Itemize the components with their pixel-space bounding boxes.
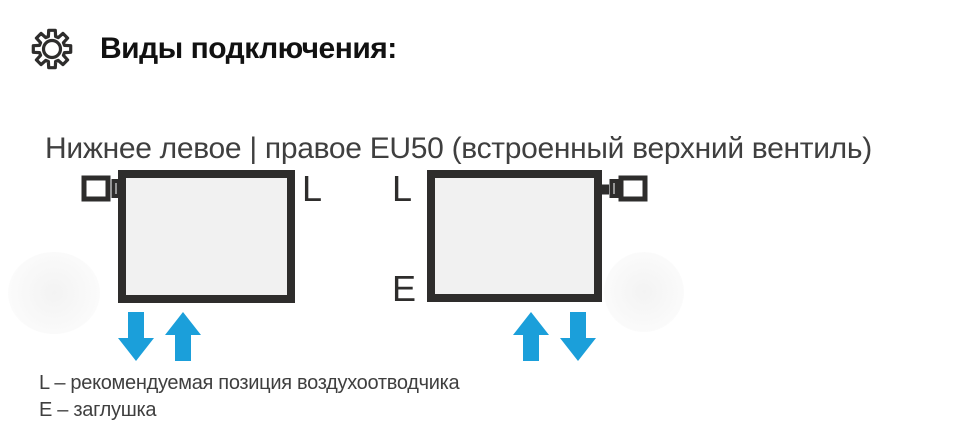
- connection-types-panel: Виды подключения: Нижнее левое | правое …: [0, 0, 970, 446]
- radiator-diagram-left: L: [70, 160, 340, 370]
- arrow-down-icon: [560, 312, 596, 361]
- air-vent-label: L: [392, 168, 412, 209]
- legend-line-plug: E – заглушка: [39, 397, 459, 424]
- valve-body-icon: [84, 178, 108, 199]
- arrow-up-icon: [165, 312, 201, 361]
- page-title: Виды подключения:: [100, 32, 397, 66]
- valve-assembly-icon: [601, 178, 645, 199]
- gear-icon: [31, 28, 73, 70]
- plug-label: E: [392, 268, 416, 309]
- radiator-body: [122, 174, 291, 299]
- legend: L – рекомендуемая позиция воздухоотводчи…: [39, 370, 459, 424]
- valve-collar-icon: [114, 181, 119, 196]
- header: Виды подключения:: [31, 28, 397, 70]
- arrow-up-icon: [513, 312, 549, 361]
- valve-collar-icon: [612, 181, 617, 196]
- air-vent-label: L: [302, 168, 322, 209]
- arrow-down-icon: [118, 312, 154, 361]
- valve-body-icon: [621, 178, 645, 199]
- radiator-diagram-right: L E: [380, 160, 670, 370]
- valve-stem-icon: [601, 185, 609, 195]
- radiator-body: [431, 174, 598, 298]
- legend-line-air-vent: L – рекомендуемая позиция воздухоотводчи…: [39, 370, 459, 397]
